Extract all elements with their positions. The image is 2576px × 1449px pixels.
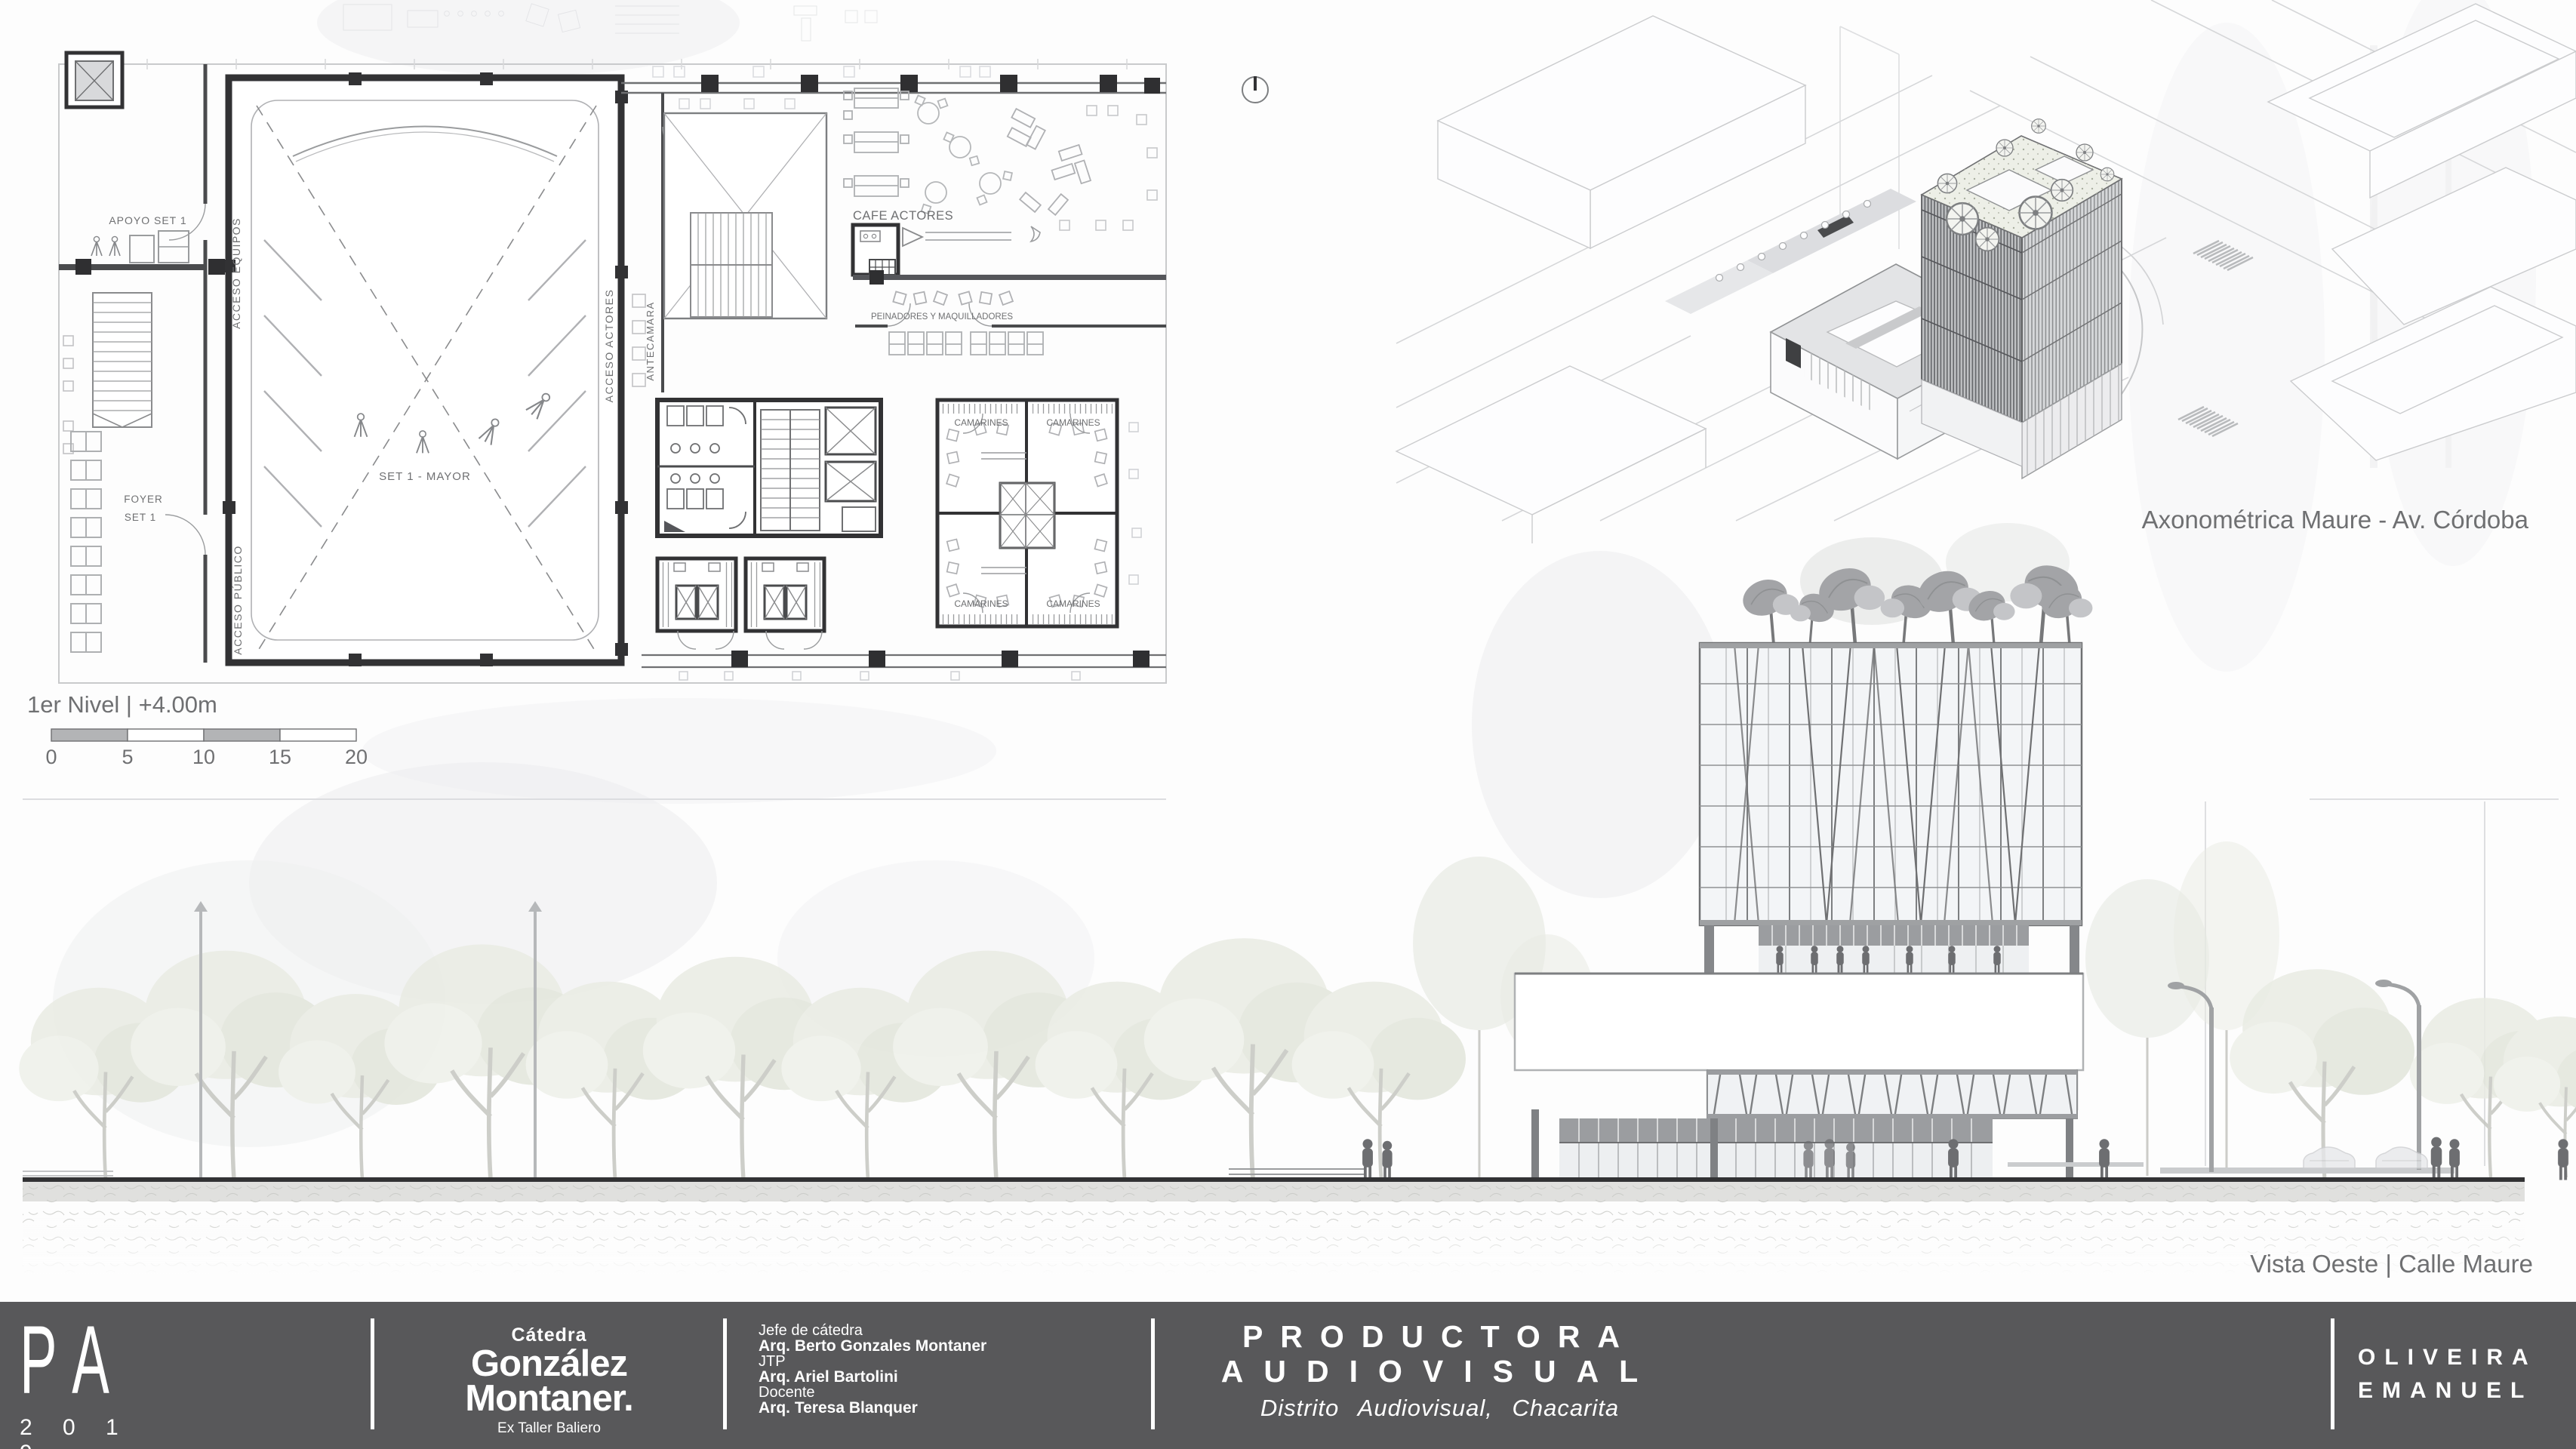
label-antecamara: ANTECAMARA xyxy=(645,301,656,380)
catedra-sub: Ex Taller Baliero xyxy=(381,1420,717,1437)
pa-2019-logo: P A 2 0 1 9 xyxy=(20,1312,171,1449)
label-camarines-tl: CAMARINES xyxy=(954,417,1008,428)
axo-caption: Axonométrica Maure - Av. Córdoba xyxy=(2142,506,2529,534)
scale-15: 15 xyxy=(269,746,291,768)
staff-block: Jefe de cátedra Arq. Berto Gonzales Mont… xyxy=(759,1323,1113,1416)
label-camarines-tr: CAMARINES xyxy=(1046,417,1100,428)
plan-peinadores: PEINADORES Y MAQUILLADORES xyxy=(853,270,1166,355)
scale-10: 10 xyxy=(192,746,215,768)
logo-letter-a: A xyxy=(72,1312,109,1409)
label-acceso-equipos: ACCESO EQUIPOS xyxy=(230,217,242,329)
axo-tower xyxy=(1922,119,2122,478)
plan-left-wing: APOYO SET 1 FOYER SET 1 xyxy=(59,53,225,663)
elev-cars xyxy=(2304,1147,2427,1168)
elevation-caption: Vista Oeste | Calle Maure xyxy=(2250,1250,2533,1278)
staff-role-3: Docente xyxy=(759,1385,1113,1400)
plan-showers xyxy=(657,558,824,649)
catedra-name-2: Montaner. xyxy=(381,1381,717,1416)
student-name-2: EMANUEL xyxy=(2358,1374,2562,1407)
staff-name-3: Arq. Teresa Blanquer xyxy=(759,1400,1113,1416)
catedra-block: Cátedra González Montaner. Ex Taller Bal… xyxy=(381,1324,717,1437)
plan-core xyxy=(657,400,881,536)
scale-5: 5 xyxy=(122,746,133,768)
label-acceso-actores: ACCESO ACTORES xyxy=(603,289,615,403)
footer-divider xyxy=(371,1318,374,1429)
project-title-block: PRODUCTORA AUDIOVISUAL Distrito Audiovis… xyxy=(1219,1321,1660,1422)
elev-ground-floor xyxy=(23,1109,2454,1180)
plan-cafe: CAFE ACTORES xyxy=(844,88,1157,275)
student-name-block: OLIVEIRA EMANUEL xyxy=(2358,1341,2562,1407)
footer-divider xyxy=(1151,1318,1155,1429)
board-drawing: SET 1 - MAYOR ACCESO EQUIPOS ACCESO PÚBL… xyxy=(0,0,2576,1449)
staff-name-2: Arq. Ariel Bartolini xyxy=(759,1369,1113,1385)
footer-bar: P A 2 0 1 9 Cátedra González Montaner. E… xyxy=(0,1302,2576,1449)
label-apoyo: APOYO SET 1 xyxy=(109,214,186,226)
label-peinadores: PEINADORES Y MAQUILLADORES xyxy=(871,312,1013,321)
elev-terrace xyxy=(1704,925,2079,974)
floor-plan: SET 1 - MAYOR ACCESO EQUIPOS ACCESO PÚBL… xyxy=(27,4,1268,768)
label-camarines-bl: CAMARINES xyxy=(954,598,1008,609)
scale-20: 20 xyxy=(345,746,368,768)
elev-slant-band xyxy=(1707,1070,2077,1118)
project-subtitle: Distrito Audiovisual, Chacarita xyxy=(1219,1395,1660,1422)
staff-name-1: Arq. Berto Gonzales Montaner xyxy=(759,1338,1113,1354)
elev-ground xyxy=(23,1177,2525,1275)
label-cafe: CAFE ACTORES xyxy=(853,209,953,223)
plan-title-block: 1er Nivel | +4.00m 0 5 10 15 20 xyxy=(27,691,368,768)
project-title-1: PRODUCTORA xyxy=(1219,1321,1660,1352)
label-camarines-br: CAMARINES xyxy=(1046,598,1100,609)
north-indicator-icon xyxy=(1242,76,1268,103)
elev-tower xyxy=(1700,643,2082,925)
label-acceso-publico: ACCESO PÚBLICO xyxy=(232,545,244,654)
footer-divider xyxy=(2331,1318,2334,1429)
label-foyer-1: FOYER xyxy=(124,494,163,505)
scale-0: 0 xyxy=(45,746,57,768)
plan-camarines: CAMARINES CAMARINES CAMARINES CAMARINES xyxy=(937,400,1117,626)
staff-role-1: Jefe de cátedra xyxy=(759,1323,1113,1338)
plan-title: 1er Nivel | +4.00m xyxy=(27,691,217,718)
project-title-2: AUDIOVISUAL xyxy=(1219,1352,1660,1390)
student-name-1: OLIVEIRA xyxy=(2358,1341,2562,1374)
studio-set1: SET 1 - MAYOR ACCESO EQUIPOS ACCESO PÚBL… xyxy=(223,72,628,666)
footer-divider xyxy=(723,1318,727,1429)
catedra-name-1: González xyxy=(381,1346,717,1381)
logo-letter-p: P xyxy=(20,1312,57,1409)
presentation-board: SET 1 - MAYOR ACCESO EQUIPOS ACCESO PÚBL… xyxy=(0,0,2576,1449)
logo-year: 2 0 1 9 xyxy=(20,1415,171,1449)
label-set-mayor: SET 1 - MAYOR xyxy=(379,470,471,483)
staff-role-2: JTP xyxy=(759,1354,1113,1369)
label-foyer-2: SET 1 xyxy=(125,512,156,523)
